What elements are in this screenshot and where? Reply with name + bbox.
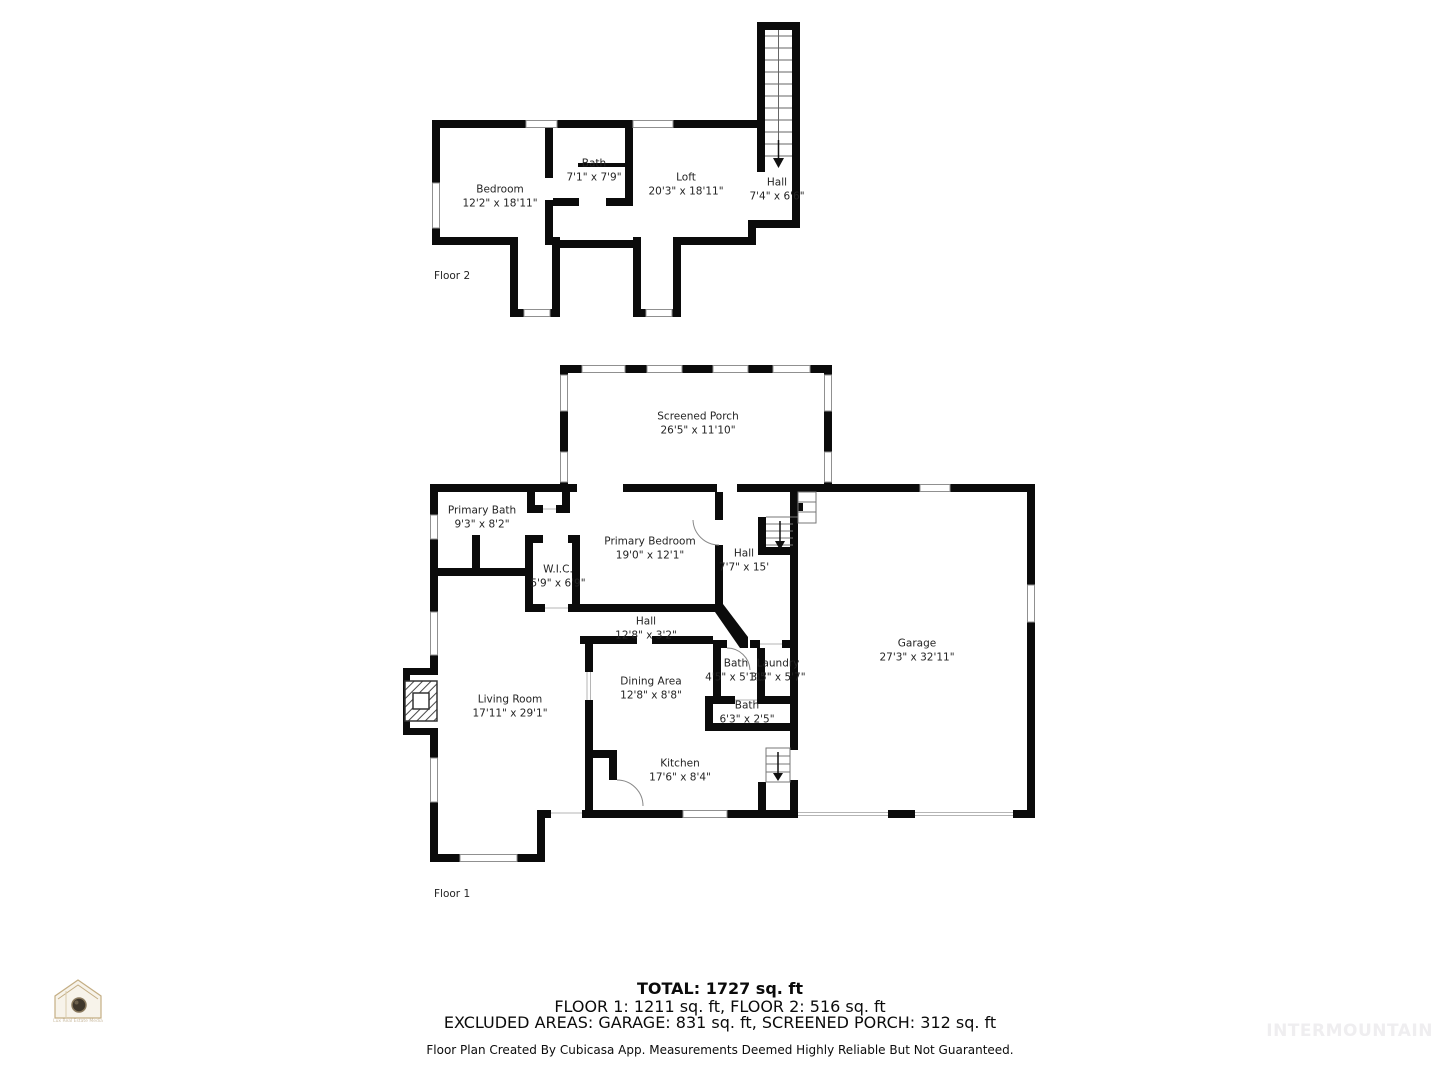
stairs-down-icon <box>765 30 792 168</box>
room-label-living-room: Living Room 17'11" x 29'1" <box>472 693 547 720</box>
room-label-wic: W.I.C. 5'9" x 6'9" <box>530 563 585 590</box>
room-label-kitchen: Kitchen 17'6" x 8'4" <box>649 757 711 784</box>
disclaimer-text: Floor Plan Created By Cubicasa App. Meas… <box>0 1043 1440 1057</box>
floor1-walls <box>403 365 1035 862</box>
room-label-hall-corridor: Hall 12'8" x 3'2" <box>615 615 677 642</box>
room-label-primary-bedroom: Primary Bedroom 19'0" x 12'1" <box>604 535 695 562</box>
floorplan-drawing <box>0 0 1440 1080</box>
excluded-areas-text: EXCLUDED AREAS: GARAGE: 831 sq. ft, SCRE… <box>0 1013 1440 1032</box>
room-label-garage: Garage 27'3" x 32'11" <box>879 637 954 664</box>
room-label-bath-f2: Bath 7'1" x 7'9" <box>566 157 621 184</box>
logo-caption: Lux Real Estate Media <box>50 1019 106 1024</box>
room-label-primary-bath: Primary Bath 9'3" x 8'2" <box>448 504 516 531</box>
room-label-laundry: Laundry 3'5" x 5'7" <box>750 657 805 684</box>
total-area-text: TOTAL: 1727 sq. ft <box>0 979 1440 998</box>
fireplace-icon <box>405 681 437 721</box>
floor1-label: Floor 1 <box>434 888 470 900</box>
garage-steps-icon <box>766 748 790 782</box>
room-label-screened-porch: Screened Porch 26'5" x 11'10" <box>657 410 738 437</box>
room-label-bedroom: Bedroom 12'2" x 18'11" <box>462 183 537 210</box>
floor2-label: Floor 2 <box>434 270 470 282</box>
room-label-loft: Loft 20'3" x 18'11" <box>648 171 723 198</box>
room-label-hall-stairs: Hall 7'7" x 15' <box>719 547 769 574</box>
floorplan-page: Bedroom 12'2" x 18'11" Bath 7'1" x 7'9" … <box>0 0 1440 1080</box>
intermountain-watermark: INTERMOUNTAIN <box>1266 1021 1433 1041</box>
room-label-bath-2: Bath 6'3" x 2'5" <box>719 699 774 726</box>
room-label-dining-area: Dining Area 12'8" x 8'8" <box>620 675 682 702</box>
floor1-plan <box>403 365 1035 862</box>
room-label-hall-f2: Hall 7'4" x 6'6" <box>749 176 804 203</box>
floor1-windows <box>431 366 1035 862</box>
